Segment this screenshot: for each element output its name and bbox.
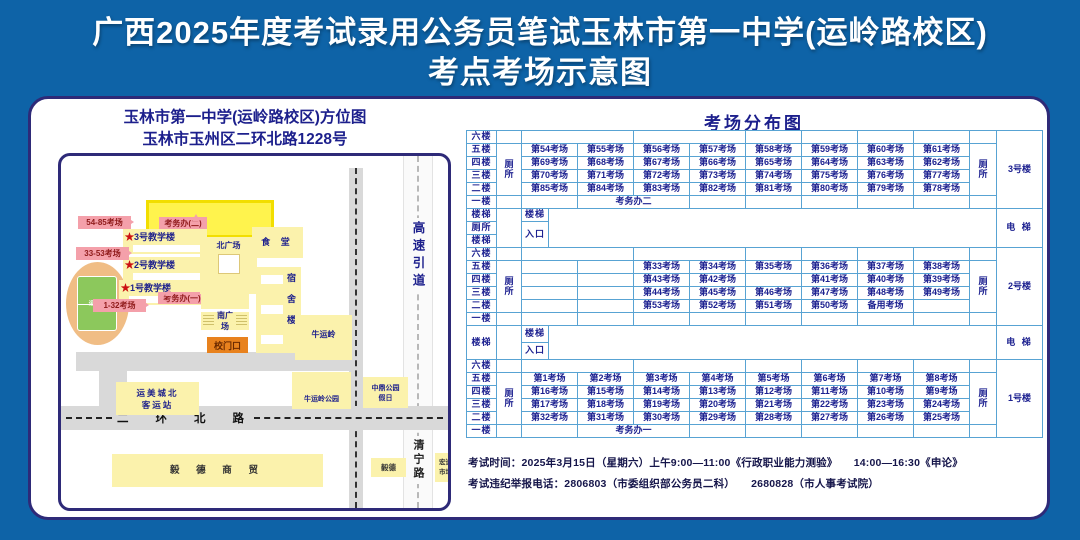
plaza-hatch [236,315,247,327]
rooms-54-85-tag: 54-85考场 [78,216,131,229]
corridor-cell [549,209,997,248]
empty-cell [522,261,578,274]
empty-cell [914,300,970,313]
empty-cell [858,196,914,209]
wc-cell: 厕 所 [497,373,522,425]
yide-block: 毅德 [371,458,406,477]
room-cell: 第59考场 [802,144,858,157]
school-gate: 校门口 [207,337,248,353]
room-cell: 第11考场 [802,386,858,399]
star-icon: ★ [125,260,134,270]
room-cell: 第73考场 [690,170,746,183]
office-cell: 考务办二 [578,196,690,209]
room-cell: 第28考场 [746,412,802,425]
empty-cell [634,313,690,326]
south-plaza: 南广场 [201,312,249,330]
rooms-table: 六楼3号楼五楼厕 所第54考场第55考场第56考场第57考场第58考场第59考场… [466,130,1042,438]
empty-cell [802,313,858,326]
road-dash-right [254,417,443,419]
empty-cell [858,360,914,373]
bus-station-line1: 运美城北 [116,387,199,399]
empty-cell [522,360,634,373]
stair-row-label: 厕所 [467,222,497,235]
room-cell: 第14考场 [634,386,690,399]
stair-row-label: 楼梯 [467,326,497,360]
empty-cell [802,425,858,438]
wc-spacer [497,360,522,373]
empty-cell [578,300,634,313]
room-cell: 第22考场 [802,399,858,412]
hongjin-line1: 宏进 [435,456,451,466]
room-cell: 第23考场 [858,399,914,412]
room-cell: 第75考场 [802,170,858,183]
star-icon: ★ [125,232,134,242]
room-cell: 第15考场 [578,386,634,399]
side-road-centerline [355,168,357,508]
room-cell: 第4考场 [690,373,746,386]
room-cell: 第37考场 [858,261,914,274]
room-cell: 第82考场 [690,183,746,196]
room-cell: 第45考场 [690,287,746,300]
rooms-1-32-tag: 1-32考场 [93,299,146,312]
floor-label: 五楼 [467,373,497,386]
wc-spacer [497,425,522,438]
wc-cell: 厕 所 [970,261,997,313]
bus-station-line2: 客运站 [116,399,199,411]
elevator-cell: 电 梯 [997,326,1043,360]
room-cell: 第32考场 [522,412,578,425]
empty-cell [802,248,858,261]
campus-map: 高速引道 清宁路 二环北路 运动场 ★3号教学楼 [58,153,451,511]
room-cell: 第60考场 [858,144,914,157]
floor-label: 六楼 [467,131,497,144]
floor-label: 六楼 [467,248,497,261]
niuyunling-park-label: 牛运岭公园 [304,396,339,403]
room-cell: 第16考场 [522,386,578,399]
room-cell: 第62考场 [914,157,970,170]
room-cell: 第67考场 [634,157,690,170]
empty-cell [858,425,914,438]
zhongding-line2: 假日 [363,393,408,403]
room-cell: 第55考场 [578,144,634,157]
admin-office-1-tag: 考务办(一) [158,292,206,304]
floor-label: 三楼 [467,399,497,412]
stair-cell: 楼梯 [522,326,549,343]
stair-row-label: 楼梯 [467,235,497,248]
wc-cell: 厕 所 [970,144,997,196]
room-cell: 第20考场 [690,399,746,412]
room-cell: 第80考场 [802,183,858,196]
stair-cell: 楼梯 [522,209,549,222]
office-cell: 考务办一 [578,425,690,438]
wc-spacer [497,131,522,144]
empty-cell [522,248,634,261]
empty-cell [690,196,746,209]
empty-cell [914,131,970,144]
floor-label: 一楼 [467,196,497,209]
empty-cell [746,313,802,326]
wc-spacer [497,196,522,209]
empty-cell [522,274,578,287]
map-header-line1: 玉林市第一中学(运岭路校区)方位图 [39,107,451,129]
room-cell: 第31考场 [578,412,634,425]
floor-label: 四楼 [467,157,497,170]
yide-trade: 毅 德 商 贸 [112,454,323,487]
floor-label: 五楼 [467,144,497,157]
wc-spacer [497,248,522,261]
room-cell: 第39考场 [914,274,970,287]
wc-spacer [497,326,522,360]
room-cell: 第19考场 [634,399,690,412]
room-cell: 第35考场 [746,261,802,274]
room-cell: 第81考场 [746,183,802,196]
room-cell: 第51考场 [746,300,802,313]
content-panel: 玉林市第一中学(运岭路校区)方位图 玉林市玉州区二环北路1228号 高速引道 清… [28,96,1050,520]
room-cell: 第1考场 [522,373,578,386]
building-label: 3号楼 [997,131,1043,209]
expressway-label: 高速引道 [409,218,428,294]
floor-label: 三楼 [467,287,497,300]
room-cell: 第21考场 [746,399,802,412]
hongjin-market: 宏进 市场 [435,453,451,482]
wc-spacer [970,360,997,373]
room-cell: 第26考场 [858,412,914,425]
rooms-33-53-tag: 33-53考场 [76,247,129,260]
floor-label: 二楼 [467,300,497,313]
wc-spacer [497,209,522,248]
zhongding-line1: 中鼎公园 [363,383,408,393]
room-cell: 第10考场 [858,386,914,399]
entrance-cell: 入口 [522,343,549,360]
floor-label: 四楼 [467,386,497,399]
room-cell: 第53考场 [634,300,690,313]
niuyunling-label: 牛运岭 [312,330,336,339]
wc-spacer [970,131,997,144]
empty-cell [914,248,970,261]
room-cell: 第29考场 [690,412,746,425]
empty-cell [578,313,634,326]
room-cell: 第63考场 [858,157,914,170]
qingning-road-label: 清宁路 [410,436,426,484]
room-cell: 第25考场 [914,412,970,425]
room-cell: 第48考场 [858,287,914,300]
building-label: 1号楼 [997,360,1043,438]
empty-cell [522,313,578,326]
room-cell: 第9考场 [914,386,970,399]
empty-cell [634,131,746,144]
wc-cell: 厕 所 [497,144,522,196]
empty-cell [802,196,858,209]
bus-station: 运美城北 客运站 [116,382,199,415]
poster-title-line1: 广西2025年度考试录用公务员笔试玉林市第一中学(运岭路校区) [0,13,1080,53]
north-plaza-courtyard [218,254,240,274]
empty-cell [802,131,858,144]
empty-cell [746,360,802,373]
empty-cell [690,313,746,326]
niuyunling-park: 牛运岭公园 [292,372,351,409]
canteen-label: 食 堂 [261,237,294,247]
empty-cell [522,425,578,438]
empty-cell [522,131,634,144]
room-cell: 第76考场 [858,170,914,183]
empty-cell [858,131,914,144]
wc-spacer [970,196,997,209]
dorm-window [261,275,283,284]
teaching-building-2: ★2号教学楼 [123,257,207,282]
canteen: 食 堂 [252,227,303,258]
room-cell: 第38考场 [914,261,970,274]
room-cell: 第6考场 [802,373,858,386]
room-cell: 第65考场 [746,157,802,170]
room-cell: 第47考场 [802,287,858,300]
floor-label: 二楼 [467,183,497,196]
room-cell: 第36考场 [802,261,858,274]
star-icon: ★ [121,283,130,293]
room-cell: 第77考场 [914,170,970,183]
exam-time-line: 考试时间：2025年3月15日（星期六）上午9:00—11:00《行政职业能力测… [468,455,1046,470]
empty-cell [746,425,802,438]
room-cell: 第79考场 [858,183,914,196]
north-plaza-label: 北广场 [217,241,241,250]
empty-cell [522,287,578,300]
empty-cell [746,248,802,261]
room-cell: 第41考场 [802,274,858,287]
entrance-cell: 入口 [522,222,549,248]
wc-spacer [970,313,997,326]
room-cell: 第52考场 [690,300,746,313]
room-cell: 第54考场 [522,144,578,157]
yide-trade-label: 毅 德 商 贸 [170,465,265,476]
empty-cell [578,261,634,274]
room-cell: 第43考场 [634,274,690,287]
elevator-cell: 电 梯 [997,209,1043,248]
empty-cell [914,313,970,326]
room-cell: 第13考场 [690,386,746,399]
expressway-road: 高速引道 清宁路 [403,156,433,508]
room-cell: 第49考场 [914,287,970,300]
plaza-hatch [203,315,214,327]
wc-spacer [970,425,997,438]
room-cell: 第69考场 [522,157,578,170]
empty-cell [578,287,634,300]
room-cell: 第40考场 [858,274,914,287]
room-cell: 第56考场 [634,144,690,157]
room-cell: 第46考场 [746,287,802,300]
empty-cell [914,360,970,373]
empty-cell [690,425,746,438]
hotline-line: 考试违纪举报电话：2806803（市委组织部公务员二科） 2680828（市人事… [468,476,1046,491]
empty-cell [858,313,914,326]
wc-cell: 厕 所 [497,261,522,313]
floor-label: 二楼 [467,412,497,425]
dorm-window [261,335,283,344]
hongjin-line2: 市场 [435,466,451,476]
poster-title-line2: 考点考场示意图 [0,53,1080,93]
room-cell: 第42考场 [690,274,746,287]
room-cell: 第8考场 [914,373,970,386]
room-cell: 第58考场 [746,144,802,157]
empty-cell [522,196,578,209]
empty-cell [914,196,970,209]
room-cell: 第34考场 [690,261,746,274]
room-cell: 第44考场 [634,287,690,300]
room-cell: 第71考场 [578,170,634,183]
room-cell: 第85考场 [522,183,578,196]
wc-spacer [970,248,997,261]
room-cell: 第24考场 [914,399,970,412]
empty-cell [634,360,746,373]
niuyunling-block: 牛运岭 [295,315,352,360]
room-cell: 第33考场 [634,261,690,274]
teaching-building-2-label: 2号教学楼 [134,260,175,270]
empty-cell [522,300,578,313]
room-cell: 第27考场 [802,412,858,425]
room-cell: 第50考场 [802,300,858,313]
wc-spacer [497,313,522,326]
empty-cell [746,196,802,209]
building-label: 2号楼 [997,248,1043,326]
floor-label: 五楼 [467,261,497,274]
room-cell: 第30考场 [634,412,690,425]
empty-cell [578,274,634,287]
room-cell: 第18考场 [578,399,634,412]
room-cell: 第70考场 [522,170,578,183]
poster-title: 广西2025年度考试录用公务员笔试玉林市第一中学(运岭路校区) 考点考场示意图 [0,13,1080,92]
mid-building [201,279,249,309]
wc-cell: 厕 所 [970,373,997,425]
empty-cell [746,131,802,144]
corridor-cell [549,326,997,360]
floor-label: 六楼 [467,360,497,373]
zhongding-park: 中鼎公园 假日 [363,377,408,408]
room-cell: 第72考场 [634,170,690,183]
empty-cell [858,248,914,261]
room-cell: 第3考场 [634,373,690,386]
map-header-line2: 玉林市玉州区二环北路1228号 [39,129,451,151]
room-cell: 第84考场 [578,183,634,196]
room-cell: 第17考场 [522,399,578,412]
floor-label: 一楼 [467,313,497,326]
room-cell: 第66考场 [690,157,746,170]
room-cell: 第74考场 [746,170,802,183]
room-cell: 第12考场 [746,386,802,399]
map-header: 玉林市第一中学(运岭路校区)方位图 玉林市玉州区二环北路1228号 [39,107,451,150]
room-cell: 第78考场 [914,183,970,196]
room-cell: 第83考场 [634,183,690,196]
teaching-building-3-label: 3号教学楼 [134,232,175,242]
room-cell: 第5考场 [746,373,802,386]
floor-label: 三楼 [467,170,497,183]
room-cell: 第61考场 [914,144,970,157]
room-cell: 第68考场 [578,157,634,170]
room-cell: 第7考场 [858,373,914,386]
admin-office-2-tag: 考务办(二) [159,217,207,229]
dorm-window [261,305,283,314]
empty-cell [802,360,858,373]
room-cell: 第64考场 [802,157,858,170]
stair-row-label: 楼梯 [467,209,497,222]
room-cell: 第57考场 [690,144,746,157]
empty-cell [634,248,746,261]
floor-label: 一楼 [467,425,497,438]
empty-cell [914,425,970,438]
yide-label: 毅德 [381,463,396,472]
room-cell: 第2考场 [578,373,634,386]
empty-cell [746,274,802,287]
floor-label: 四楼 [467,274,497,287]
poster-page: 广西2025年度考试录用公务员笔试玉林市第一中学(运岭路校区) 考点考场示意图 … [0,0,1080,540]
south-plaza-label: 南广场 [214,310,237,332]
room-cell: 备用考场 [858,300,914,313]
road-dash-left [66,417,112,419]
